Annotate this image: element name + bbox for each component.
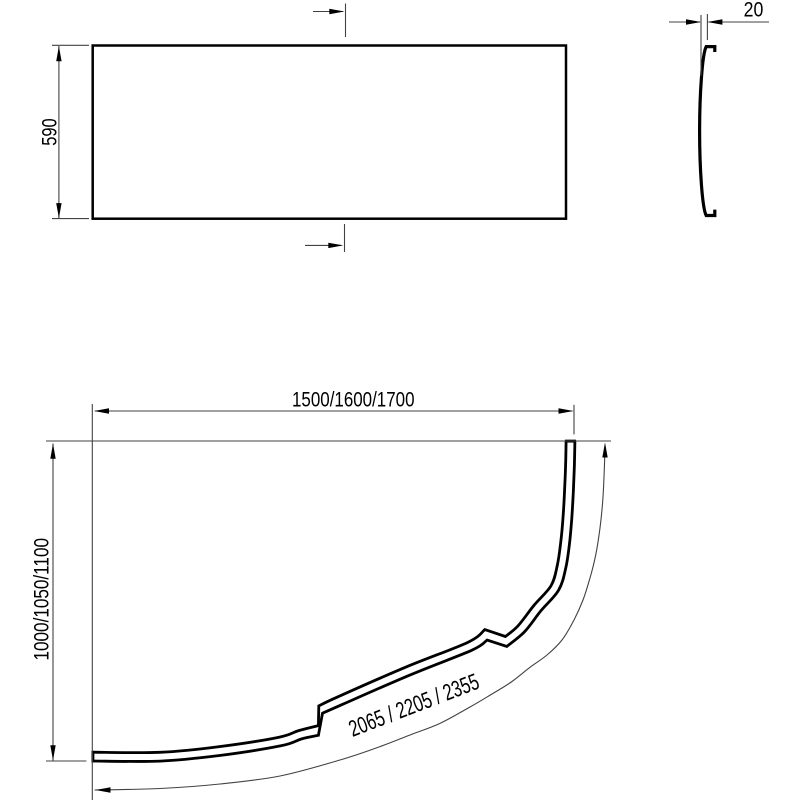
- svg-text:20: 20: [744, 0, 764, 21]
- svg-text:1000/1050/1100: 1000/1050/1100: [30, 538, 54, 661]
- svg-text:1500/1600/1700: 1500/1600/1700: [292, 387, 415, 411]
- svg-text:590: 590: [37, 118, 61, 146]
